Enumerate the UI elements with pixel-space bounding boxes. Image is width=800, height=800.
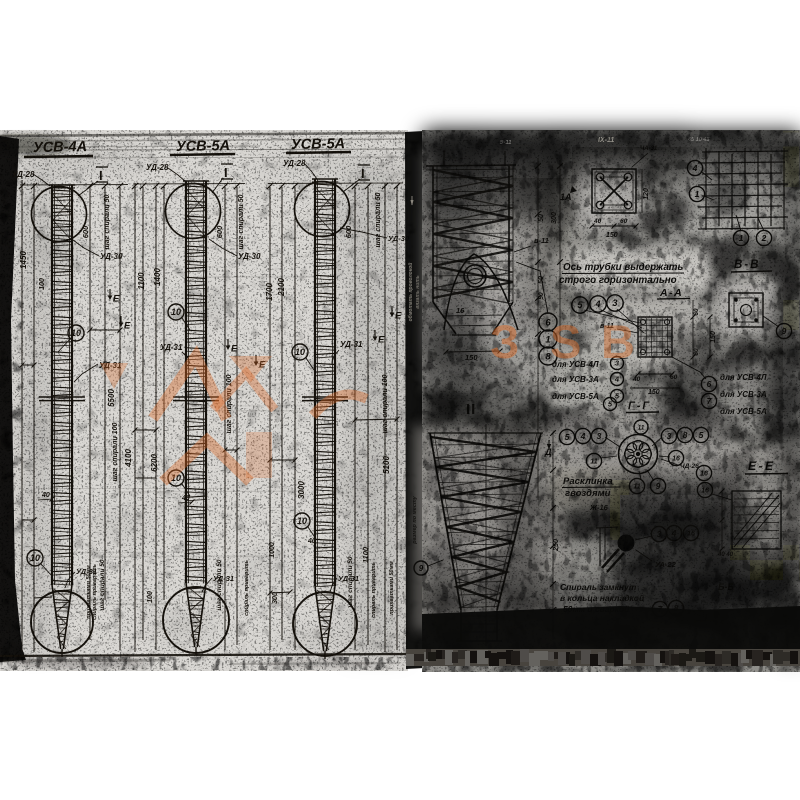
svg-text:З: З — [490, 315, 519, 368]
svg-text:В: В — [601, 315, 635, 368]
svg-text:размер по месту: размер по месту — [412, 495, 418, 544]
svg-text:вязать нить: вязать нить — [415, 275, 421, 309]
svg-text:Ѕ: Ѕ — [550, 315, 581, 368]
svg-text:обмотать проволокой: обмотать проволокой — [407, 263, 414, 322]
